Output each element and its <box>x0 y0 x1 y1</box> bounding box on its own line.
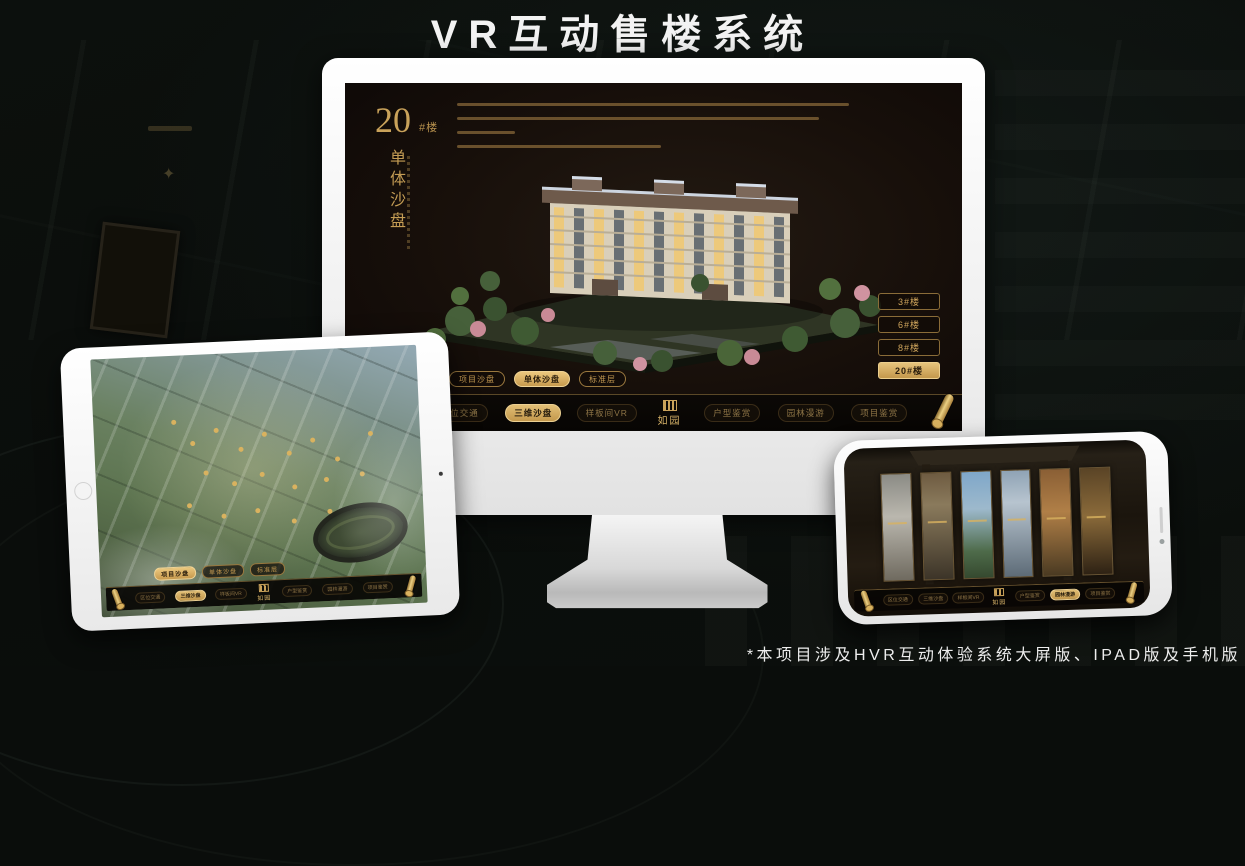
nav-item[interactable]: 户型鉴赏 <box>696 404 770 422</box>
tablet-camera-dot <box>439 471 443 475</box>
view-mode-tab[interactable]: 单体沙盘 <box>514 371 570 387</box>
view-tab-label: 单体沙盘 <box>209 566 237 576</box>
view-mode-tab[interactable]: 标准层 <box>579 371 626 387</box>
residential-building <box>542 175 798 304</box>
nav-item[interactable]: 园林漫游 <box>1047 589 1083 601</box>
view-tab-label: 标准层 <box>257 564 278 574</box>
nav-item[interactable]: 三维沙盘 <box>170 589 211 602</box>
scroll-menu-icon[interactable] <box>932 393 955 428</box>
view-tab-label: 标准层 <box>589 374 616 385</box>
nav-item[interactable]: 园林漫游 <box>769 404 843 422</box>
entry-lintel <box>910 446 1080 466</box>
scene-panel[interactable] <box>960 470 994 579</box>
view-tab-label: 项目沙盘 <box>161 568 189 578</box>
nav-item[interactable]: 三维沙盘 <box>497 404 571 422</box>
scene-panel[interactable] <box>1039 468 1073 577</box>
tablet-device: 项目沙盘单体沙盘标准层 区位交通三维沙盘样板间VR 如园 户型鉴赏园林漫游项目鉴… <box>60 331 460 631</box>
brand-logo-text: 如园 <box>658 412 682 427</box>
brand-seal-icon <box>994 588 1004 596</box>
nav-item[interactable]: 样板间VR <box>570 404 644 422</box>
tablet-screen-aerial-masterplan[interactable]: 项目沙盘单体沙盘标准层 区位交通三维沙盘样板间VR 如园 户型鉴赏园林漫游项目鉴… <box>90 345 427 618</box>
text-line <box>457 145 661 148</box>
nav-item[interactable]: 三维沙盘 <box>915 593 951 605</box>
brand-logo: 如园 <box>986 587 1013 606</box>
background-gold-label <box>148 126 192 131</box>
floor-buttons: 3#楼6#楼8#楼20#楼 <box>878 293 940 379</box>
view-mode-tab[interactable]: 项目沙盘 <box>154 566 197 581</box>
phone-screen-interior-gallery[interactable]: 区位交通三维沙盘样板间VR 如园 户型鉴赏园林漫游项目鉴赏 <box>843 439 1150 616</box>
background-buildings-top-right <box>995 60 1245 420</box>
floor-button-label: 3#楼 <box>898 295 920 308</box>
scene-panel[interactable] <box>1079 467 1113 576</box>
phone-navigation-bar: 区位交通三维沙盘样板间VR 如园 户型鉴赏园林漫游项目鉴赏 <box>854 581 1145 612</box>
nav-right-group: 户型鉴赏园林漫游项目鉴赏 <box>1012 587 1118 601</box>
sand-table-model-viewport[interactable] <box>400 161 900 401</box>
nav-right-group: 户型鉴赏园林漫游项目鉴赏 <box>696 404 917 422</box>
floor-button-label: 6#楼 <box>898 318 920 331</box>
nav-item[interactable]: 项目鉴赏 <box>357 581 398 594</box>
compass-star-icon: ✦ <box>162 164 175 184</box>
nav-item[interactable]: 项目鉴赏 <box>843 404 917 422</box>
view-tab-label: 单体沙盘 <box>524 374 560 385</box>
scroll-menu-icon[interactable] <box>1126 582 1137 603</box>
text-line <box>457 103 849 106</box>
nav-item[interactable]: 区位交通 <box>880 594 916 606</box>
scene-panel[interactable] <box>920 472 954 581</box>
nav-item[interactable]: 样板间VR <box>210 588 251 601</box>
phone-device: 区位交通三维沙盘样板间VR 如园 户型鉴赏园林漫游项目鉴赏 <box>833 431 1173 625</box>
brand-logo-text: 如园 <box>992 596 1006 605</box>
nav-item[interactable]: 项目鉴赏 <box>1083 587 1119 599</box>
view-tab-label: 项目沙盘 <box>459 374 495 385</box>
floor-button[interactable]: 20#楼 <box>878 362 940 379</box>
nav-left-group: 区位交通三维沙盘样板间VR <box>880 592 986 606</box>
background-plaque <box>90 222 181 339</box>
nav-right-group: 户型鉴赏园林漫游项目鉴赏 <box>277 581 398 597</box>
view-mode-tab[interactable]: 项目沙盘 <box>449 371 505 387</box>
brand-logo: 如园 <box>644 400 696 427</box>
text-line <box>457 131 515 134</box>
phone-front-camera <box>1159 539 1164 544</box>
building-number-suffix: #楼 <box>419 119 438 135</box>
phone-speaker-slot <box>1159 507 1163 533</box>
scene-panel-gallery <box>880 467 1113 582</box>
floor-button-label: 20#楼 <box>895 364 923 377</box>
floor-button[interactable]: 8#楼 <box>878 339 940 356</box>
scene-panel[interactable] <box>1000 469 1034 578</box>
scroll-menu-icon[interactable] <box>111 588 124 609</box>
view-mode-tabs: 项目沙盘单体沙盘标准层 <box>449 371 626 387</box>
floor-button[interactable]: 3#楼 <box>878 293 940 310</box>
page-title: VR互动售楼系统 <box>0 2 1245 60</box>
nav-item[interactable]: 户型鉴赏 <box>277 585 318 598</box>
view-mode-tab[interactable]: 单体沙盘 <box>202 564 245 579</box>
brand-seal-icon <box>259 583 269 591</box>
nav-item[interactable]: 区位交通 <box>130 591 171 604</box>
tablet-home-button[interactable] <box>74 481 93 500</box>
footnote-text: *本项目涉及HVR互动体验系统大屏版、IPAD版及手机版 <box>747 641 1241 665</box>
floor-button-label: 8#楼 <box>898 341 920 354</box>
text-line <box>457 117 819 120</box>
brand-seal-icon <box>663 400 677 411</box>
nav-item[interactable]: 样板间VR <box>951 592 987 604</box>
nav-left-group: 区位交通三维沙盘样板间VR <box>130 588 251 604</box>
scene-panel[interactable] <box>880 473 914 582</box>
brand-logo-text: 如园 <box>257 592 271 602</box>
nav-item[interactable]: 户型鉴赏 <box>1012 590 1048 602</box>
scroll-menu-icon[interactable] <box>405 575 416 596</box>
nav-left-group: 区位交通三维沙盘样板间VR <box>423 404 644 422</box>
view-mode-tab[interactable]: 标准层 <box>250 562 286 577</box>
floor-button[interactable]: 6#楼 <box>878 316 940 333</box>
nav-item[interactable]: 园林漫游 <box>317 583 358 596</box>
brand-logo: 如园 <box>251 583 278 602</box>
building-number-heading: 20 <box>375 99 411 141</box>
scroll-menu-icon[interactable] <box>860 590 872 611</box>
